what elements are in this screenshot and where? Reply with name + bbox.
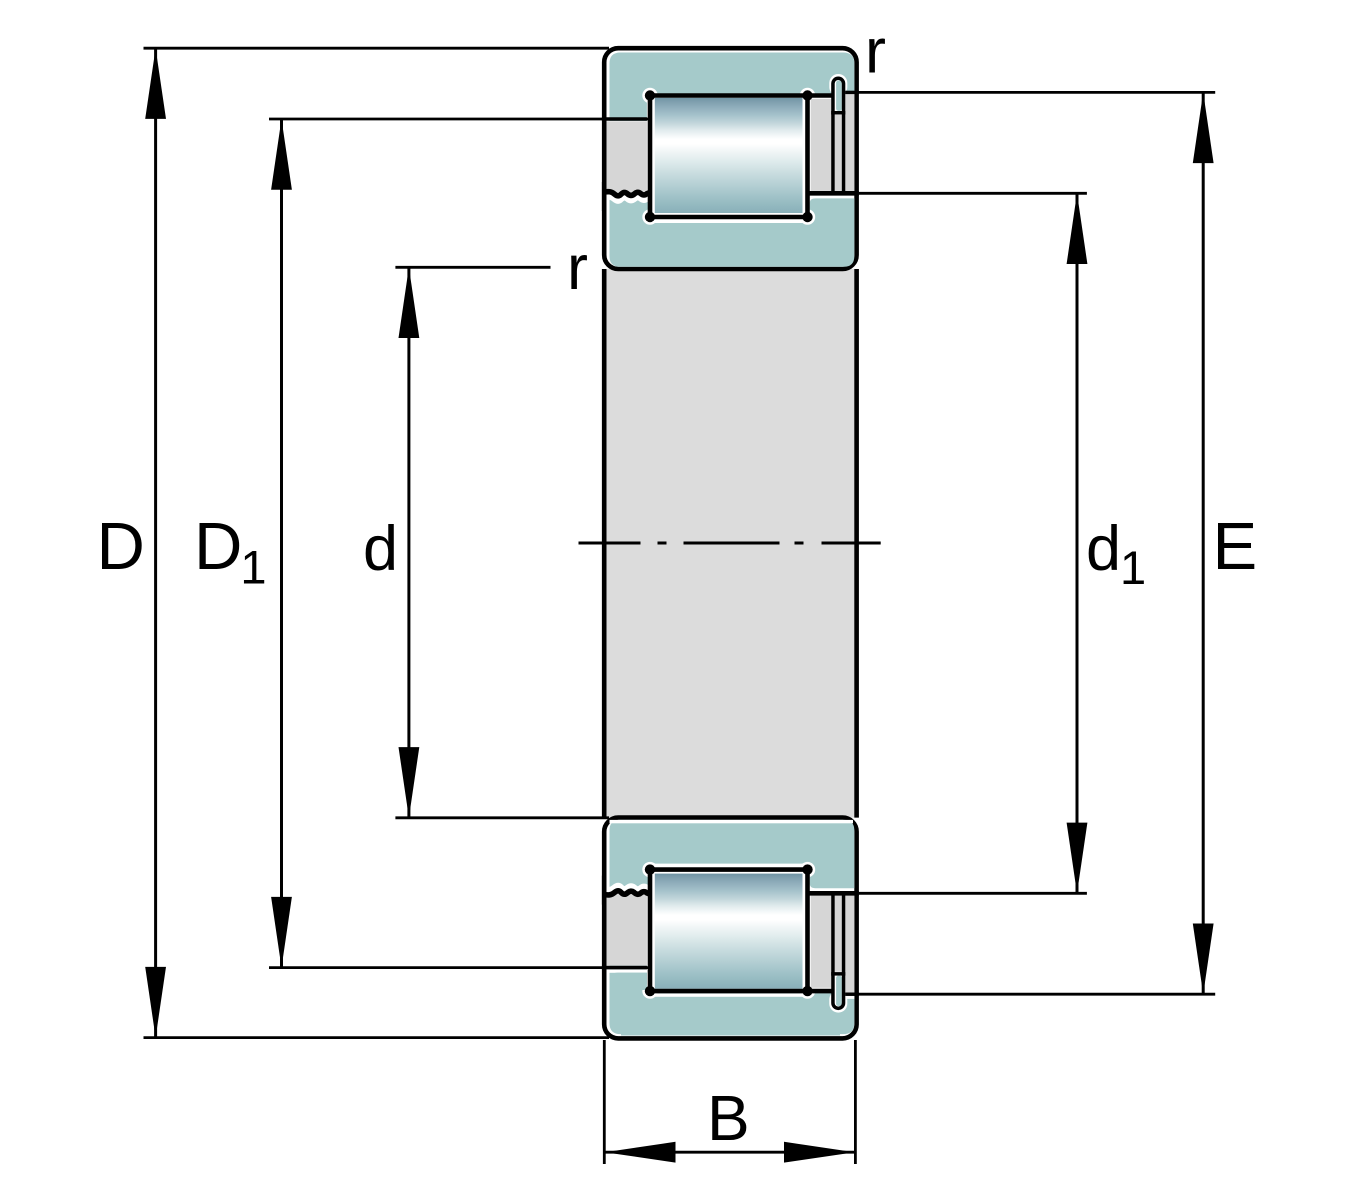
svg-text:r: r <box>567 233 588 303</box>
svg-text:D: D <box>97 509 145 584</box>
svg-text:E: E <box>1213 509 1258 584</box>
svg-text:d1: d1 <box>1086 514 1146 594</box>
svg-text:d: d <box>363 514 398 584</box>
svg-text:B: B <box>707 1082 750 1154</box>
svg-text:r: r <box>865 17 886 87</box>
svg-text:D1: D1 <box>194 509 267 594</box>
